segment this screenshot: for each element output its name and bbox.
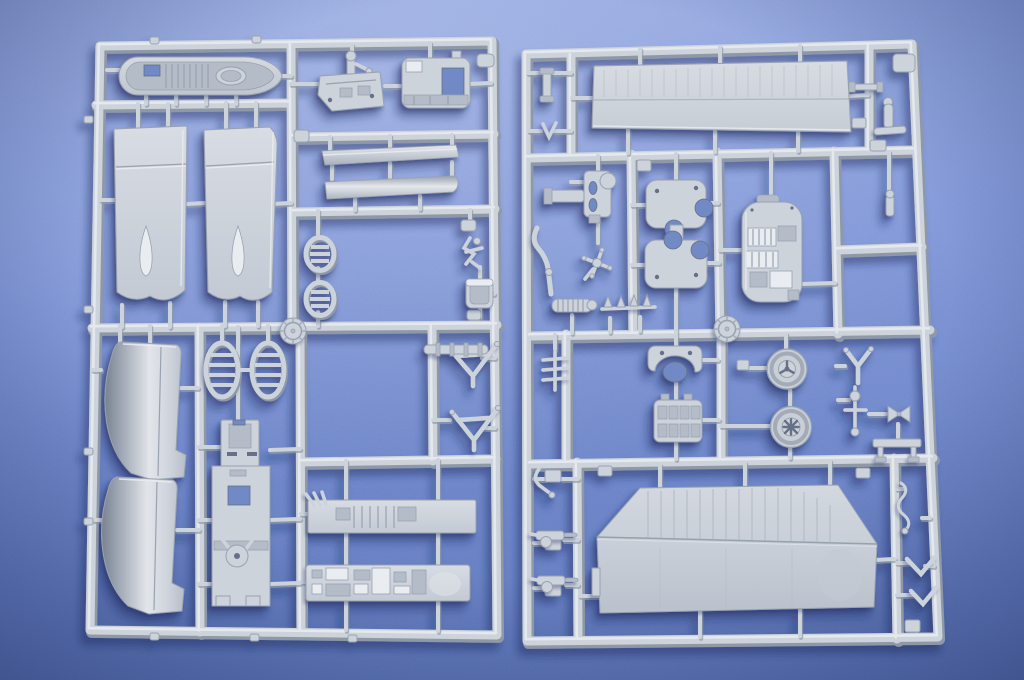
cockpit-deck-hatch: [402, 51, 470, 108]
small-pin-1: [849, 82, 883, 92]
wheel-cover-1: [767, 349, 807, 389]
mould-stamp-disc-b: [714, 316, 740, 342]
fuselage-skin-panel-2: [204, 127, 277, 300]
engine-crankcase: [742, 195, 802, 302]
equipment-shelf: [306, 565, 470, 601]
small-pin-4: [886, 190, 894, 216]
bucket-seat: [466, 279, 493, 308]
photo-canvas: [0, 0, 1024, 680]
cockpit-floor-tub: [119, 57, 282, 95]
mould-stamp-disc-a: [280, 318, 306, 344]
ribbed-exhaust: [552, 299, 597, 312]
wheel-cover-2: [771, 407, 812, 448]
lower-wing-skin: [592, 485, 877, 613]
kit-sprues-photo: [0, 0, 1024, 680]
jointed-rod: [424, 343, 488, 356]
cylinder-block: [654, 394, 702, 442]
upper-wing-skin: [592, 61, 851, 132]
small-pin-2: [884, 98, 894, 129]
fuselage-skin-panel-1: [114, 126, 187, 300]
